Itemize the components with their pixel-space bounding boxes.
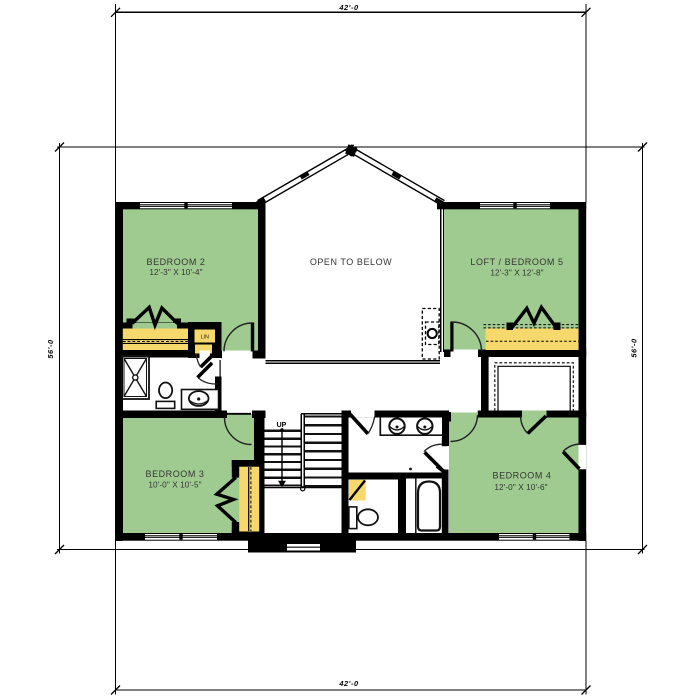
svg-text:12'-3" X 10'-4": 12'-3" X 10'-4" [149, 268, 202, 277]
svg-text:42'-0: 42'-0 [338, 3, 359, 12]
svg-text:12'-3" X 12'-8": 12'-3" X 12'-8" [490, 269, 543, 278]
svg-text:56'-0: 56'-0 [46, 339, 55, 359]
svg-text:LIN: LIN [201, 335, 209, 341]
svg-text:56'-0: 56'-0 [630, 338, 639, 358]
svg-text:LOFT / BEDROOM 5: LOFT / BEDROOM 5 [470, 257, 563, 267]
svg-text:BEDROOM 2: BEDROOM 2 [147, 257, 206, 267]
svg-text:OPEN TO BELOW: OPEN TO BELOW [310, 257, 392, 267]
svg-text:42'-0: 42'-0 [338, 679, 359, 688]
svg-text:10'-0" X 10'-5": 10'-0" X 10'-5" [148, 481, 201, 490]
svg-text:BEDROOM 3: BEDROOM 3 [146, 469, 205, 479]
svg-text:BEDROOM 4: BEDROOM 4 [493, 470, 552, 480]
svg-text:12'-0" X 10'-6": 12'-0" X 10'-6" [494, 483, 547, 492]
svg-text:UP: UP [277, 422, 287, 429]
